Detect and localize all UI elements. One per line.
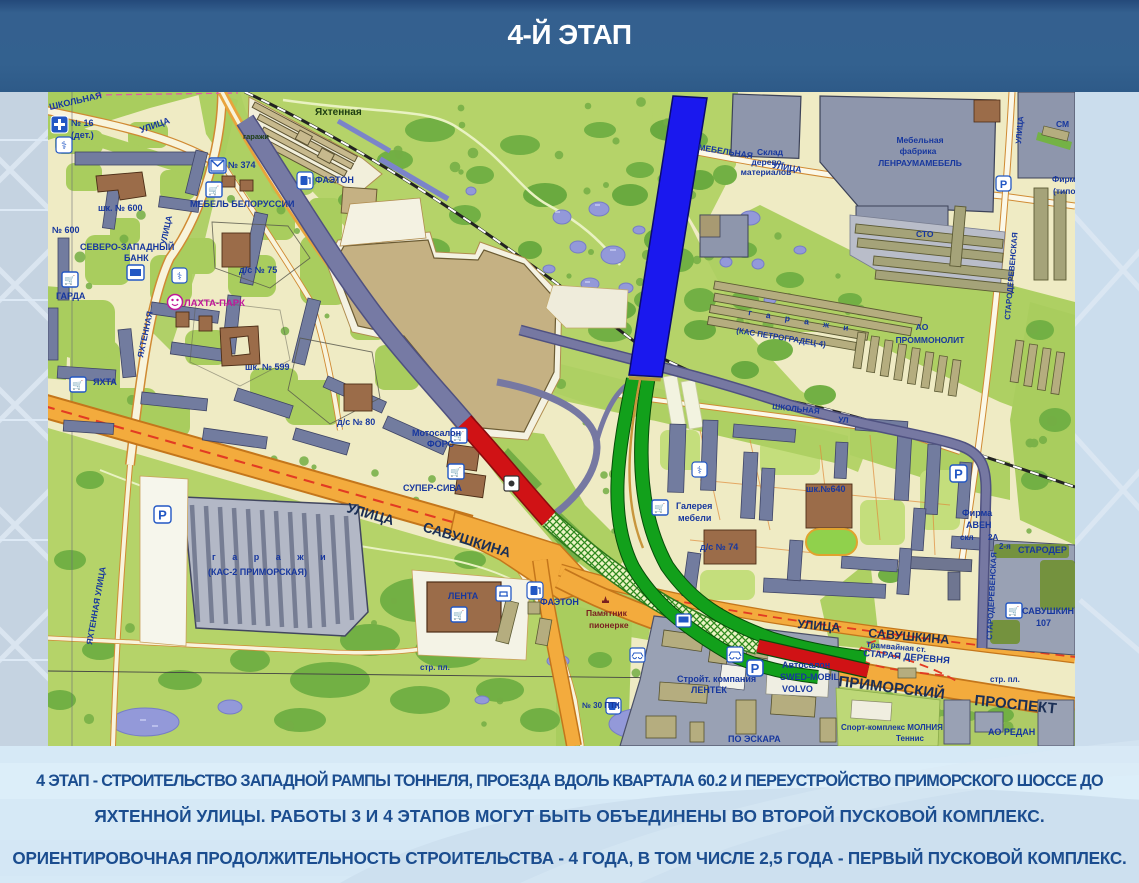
svg-text:🛒: 🛒	[654, 502, 665, 513]
svg-text:Мебельная: Мебельная	[896, 135, 943, 145]
svg-text:шк. № 599: шк. № 599	[245, 362, 290, 372]
svg-text:гаражи: гаражи	[243, 132, 269, 141]
svg-text:ЛЕНТА: ЛЕНТА	[448, 591, 479, 601]
svg-text:СТО: СТО	[916, 229, 934, 239]
svg-text:ЯХТА: ЯХТА	[93, 377, 117, 387]
svg-text:№ 374: № 374	[228, 160, 256, 170]
svg-text:(типо: (типо	[1053, 186, 1076, 196]
svg-text:Памятник: Памятник	[586, 608, 628, 618]
svg-text:Автосалон: Автосалон	[782, 660, 830, 670]
svg-text:Стройт. компания: Стройт. компания	[677, 674, 756, 684]
svg-text:🛒: 🛒	[450, 466, 461, 477]
svg-text:107: 107	[1036, 618, 1051, 628]
svg-text:⚕: ⚕	[697, 466, 702, 477]
svg-text:МЕБЕЛЬ БЕЛОРУССИИ: МЕБЕЛЬ БЕЛОРУССИИ	[190, 199, 294, 209]
svg-text:ЛАХТА-ПАРК: ЛАХТА-ПАРК	[184, 298, 245, 309]
svg-text:(КАС-2 ПРИМОРСКАЯ): (КАС-2 ПРИМОРСКАЯ)	[208, 567, 307, 577]
svg-text:🛒: 🛒	[208, 185, 219, 196]
svg-text:№ 30 ПТК: № 30 ПТК	[582, 701, 620, 710]
svg-text:стр. пл.: стр. пл.	[420, 663, 450, 672]
svg-text:ГАРДА: ГАРДА	[56, 291, 86, 301]
svg-text:ПРОММОНОЛИТ: ПРОММОНОЛИТ	[896, 335, 966, 345]
svg-text:Фирм: Фирм	[1052, 174, 1076, 184]
svg-text:фабрика: фабрика	[900, 146, 937, 156]
svg-text:СУПЕР-СИВА: СУПЕР-СИВА	[403, 483, 462, 493]
svg-text:СМ: СМ	[1056, 119, 1069, 129]
svg-text:СТАРОДЕР: СТАРОДЕР	[1018, 545, 1067, 555]
svg-text:Склад: Склад	[757, 147, 784, 157]
svg-text:Галерея: Галерея	[676, 501, 712, 511]
svg-text:мебели: мебели	[678, 513, 711, 523]
svg-text:Теннис: Теннис	[896, 734, 925, 743]
svg-text:г а р а ж и: г а р а ж и	[212, 552, 333, 562]
svg-text:ЛЕНТЕК: ЛЕНТЕК	[691, 685, 727, 695]
svg-text:(дет.): (дет.)	[71, 130, 94, 140]
svg-text:стр. пл.: стр. пл.	[990, 675, 1020, 684]
svg-text:VOLVO: VOLVO	[782, 684, 813, 694]
svg-text:Фирма: Фирма	[962, 508, 993, 518]
svg-text:P: P	[1000, 179, 1007, 191]
svg-text:№ 16: № 16	[71, 118, 94, 128]
svg-text:2А: 2А	[988, 533, 998, 542]
svg-text:Яхтенная: Яхтенная	[315, 107, 362, 118]
svg-text:P: P	[954, 467, 963, 482]
svg-text:P: P	[158, 508, 167, 523]
svg-text:SWED-MOBIL: SWED-MOBIL	[780, 672, 839, 682]
svg-text:д/с № 74: д/с № 74	[700, 542, 738, 552]
svg-text:🛒: 🛒	[72, 379, 83, 390]
svg-text:АО: АО	[916, 322, 929, 332]
svg-text:АО РЕДАН: АО РЕДАН	[988, 727, 1035, 737]
svg-text:д/с № 75: д/с № 75	[239, 265, 277, 275]
svg-text:УЛ: УЛ	[838, 415, 850, 425]
svg-text:шк.№640: шк.№640	[806, 484, 846, 494]
svg-text:ФАЭТОН: ФАЭТОН	[540, 597, 579, 607]
svg-text:⚕: ⚕	[61, 140, 67, 152]
svg-text:ЛЕНРАУМАМЕБЕЛЬ: ЛЕНРАУМАМЕБЕЛЬ	[878, 158, 962, 168]
svg-text:скл: скл	[960, 533, 974, 542]
svg-text:АВЕН: АВЕН	[966, 520, 992, 530]
svg-text:ПО ЭСКАРА: ПО ЭСКАРА	[728, 734, 781, 744]
svg-text:🛒: 🛒	[453, 609, 464, 620]
svg-text:д/с № 80: д/с № 80	[337, 417, 375, 427]
svg-text:🛒: 🛒	[64, 274, 75, 285]
svg-text:Мотосалон: Мотосалон	[412, 428, 461, 438]
svg-text:🛒: 🛒	[1008, 605, 1019, 616]
svg-text:ФОРС: ФОРС	[427, 439, 454, 449]
svg-text:2-я: 2-я	[999, 542, 1011, 551]
svg-text:⚕: ⚕	[177, 272, 182, 283]
svg-text:шк. № 600: шк. № 600	[98, 203, 143, 213]
svg-text:ФАЭТОН: ФАЭТОН	[315, 175, 354, 185]
svg-text:пионерке: пионерке	[589, 620, 629, 630]
svg-text:№ 600: № 600	[52, 225, 80, 235]
svg-text:САВУШКИН: САВУШКИН	[1022, 606, 1074, 616]
svg-text:БАНК: БАНК	[124, 253, 149, 263]
svg-text:Спорт-комплекс МОЛНИЯ: Спорт-комплекс МОЛНИЯ	[841, 723, 943, 732]
